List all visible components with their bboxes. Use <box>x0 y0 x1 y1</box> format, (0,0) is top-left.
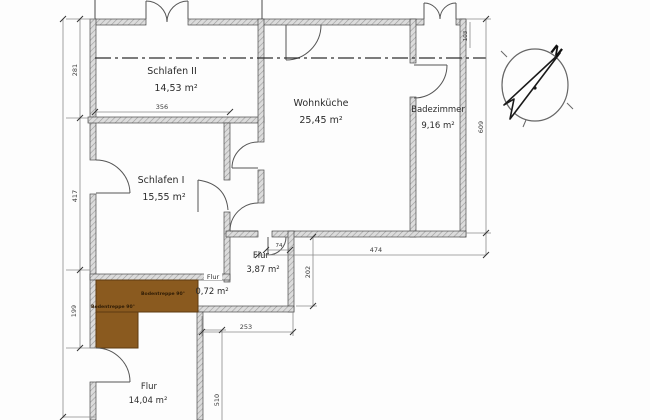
wall-segment <box>198 306 294 312</box>
door-flur-gross <box>96 348 130 382</box>
stair-label-lower: Bodentreppe 90° <box>91 304 135 310</box>
dim-356: 356 <box>156 103 168 111</box>
dim-474: 474 <box>370 246 382 254</box>
wall-segment <box>288 231 294 312</box>
room-area-flur-klein: 3,87 m² <box>246 265 279 275</box>
walls <box>88 19 466 420</box>
floorplan-canvas: Bodentreppe 90° Bodentreppe 90° <box>0 0 650 420</box>
dimension-labels: 281 417 199 356 474 609 103 74 202 253 5… <box>70 30 485 406</box>
door-badezimmer <box>414 65 447 98</box>
dim-202: 202 <box>304 266 312 278</box>
floorplan-svg: Bodentreppe 90° Bodentreppe 90° <box>0 0 650 420</box>
room-name-flur-gross: Flur <box>141 382 158 392</box>
room-name-flur-mini: Flur <box>207 273 220 281</box>
dim-103: 103 <box>463 30 469 41</box>
staircase: Bodentreppe 90° Bodentreppe 90° <box>91 280 198 348</box>
wall-segment <box>90 19 96 160</box>
door-schlafen2-top <box>146 1 188 22</box>
room-name-flur-klein: Flur <box>253 251 270 261</box>
dim-281: 281 <box>71 64 79 76</box>
dim-510: 510 <box>213 394 221 406</box>
compass-needle-icon <box>504 53 560 119</box>
room-area-wohnkueche: 25,45 m² <box>299 115 342 126</box>
dimension-ticks <box>60 16 489 420</box>
wall-segment <box>88 117 264 123</box>
wall-segment <box>224 212 230 282</box>
room-name-badezimmer: Badezimmer <box>411 105 465 115</box>
wall-segment <box>90 194 96 348</box>
wall-segment <box>95 19 146 25</box>
door-schlafen1-right <box>198 180 228 212</box>
wall-segment <box>272 231 466 237</box>
door-corridor-lower <box>230 203 258 231</box>
wall-segment <box>226 231 258 237</box>
wall-segment <box>224 123 230 180</box>
door-wohnkueche <box>286 25 321 60</box>
room-area-badezimmer: 9,16 m² <box>421 121 454 131</box>
compass-center-dot <box>533 86 536 89</box>
dimension-lines <box>63 19 491 420</box>
wall-segment <box>188 19 424 25</box>
door-schlafen1-left <box>96 160 130 193</box>
wall-segment <box>460 19 466 237</box>
room-area-schlafen1: 15,55 m² <box>142 192 185 203</box>
door-corridor-upper <box>232 142 258 168</box>
room-name-wohnkueche: Wohnküche <box>293 98 348 109</box>
dim-609: 609 <box>477 121 485 133</box>
room-name-schlafen1: Schlafen I <box>138 175 185 186</box>
wall-segment <box>258 170 264 203</box>
stair-label-upper: Bodentreppe 90° <box>141 291 185 297</box>
room-area-schlafen2: 14,53 m² <box>154 83 197 94</box>
room-area-flur-gross: 14,04 m² <box>129 396 168 406</box>
wall-segment <box>258 19 264 142</box>
door-badezimmer-top <box>424 3 456 19</box>
room-area-flur-mini: 0,72 m² <box>195 287 228 297</box>
dim-74: 74 <box>276 243 283 249</box>
compass-north-label: N <box>547 42 565 61</box>
compass-rose: N <box>501 42 573 127</box>
wall-segment <box>410 97 416 237</box>
stair-run-lower <box>96 312 138 348</box>
wall-segment <box>410 19 416 63</box>
dim-253: 253 <box>240 323 252 331</box>
dim-199: 199 <box>70 305 78 317</box>
dim-417: 417 <box>71 190 79 202</box>
wall-segment <box>90 382 96 420</box>
room-name-schlafen2: Schlafen II <box>147 66 197 77</box>
